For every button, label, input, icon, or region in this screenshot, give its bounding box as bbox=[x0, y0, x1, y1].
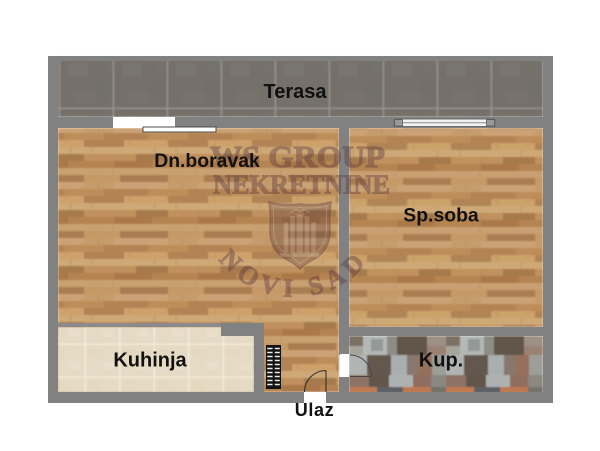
svg-text:NEKRETNINE: NEKRETNINE bbox=[213, 170, 390, 200]
svg-text:Kuhinja: Kuhinja bbox=[113, 350, 187, 372]
svg-text:Ulaz: Ulaz bbox=[295, 400, 334, 420]
svg-text:Kup.: Kup. bbox=[419, 350, 463, 372]
svg-text:Dn.boravak: Dn.boravak bbox=[154, 150, 260, 172]
svg-text:Terasa: Terasa bbox=[263, 81, 327, 103]
svg-text:Sp.soba: Sp.soba bbox=[403, 205, 479, 227]
